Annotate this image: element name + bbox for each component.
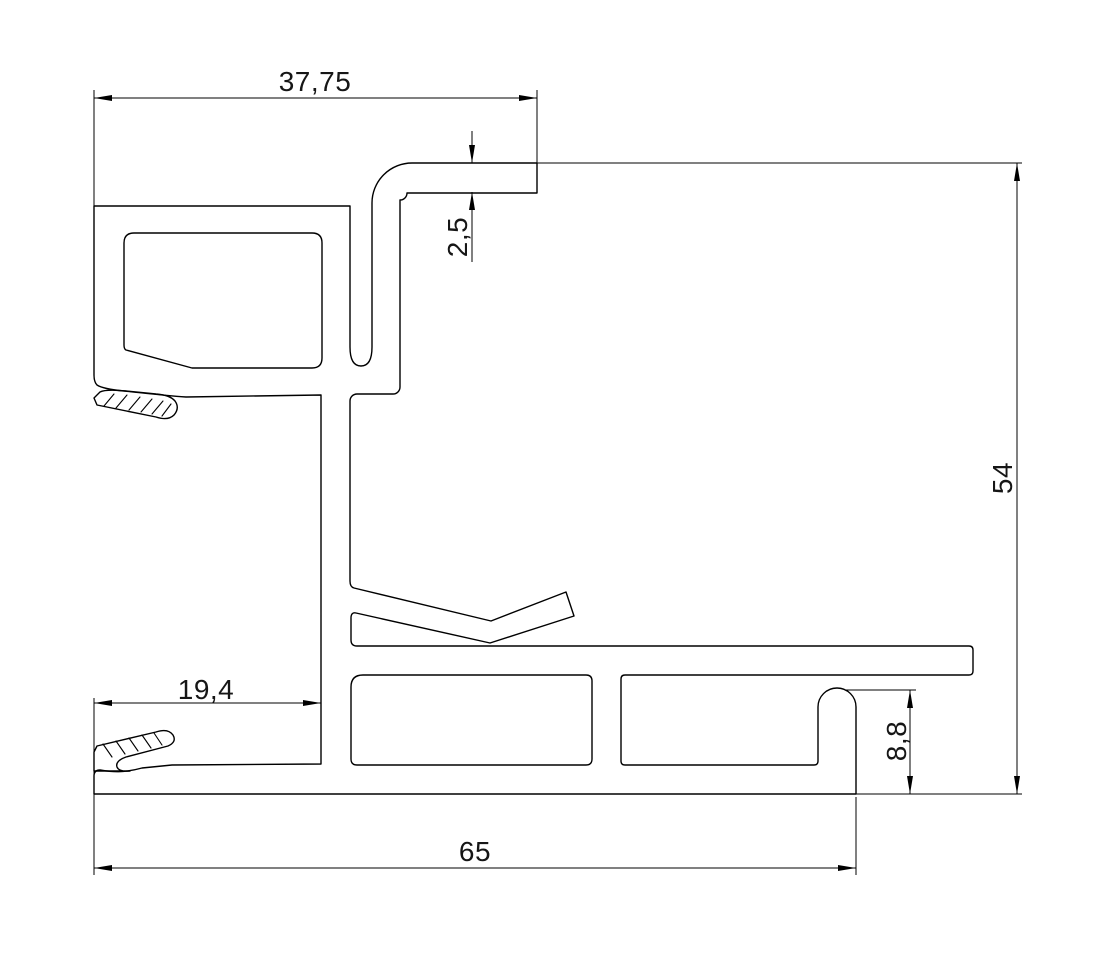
- arrow-up-icon: [469, 192, 475, 210]
- arrow-right-icon: [519, 95, 537, 101]
- upper-barb-outline: [94, 390, 177, 418]
- cad-drawing: 37,75 2,5 54 19,4 8,8 65: [0, 0, 1115, 963]
- dimension-overall-width: 65: [94, 797, 856, 875]
- dimension-overall-height: 54: [537, 163, 1022, 794]
- arrow-right-icon: [838, 865, 856, 871]
- lower-barb-hatching: [103, 733, 162, 757]
- arrow-left-icon: [94, 700, 112, 706]
- dim-label-overall-width: 65: [459, 836, 491, 867]
- arrow-down-icon: [469, 145, 475, 163]
- dim-label-top-width: 37,75: [279, 66, 352, 97]
- upper-cavity: [124, 233, 322, 368]
- dim-label-overall-height: 54: [987, 462, 1018, 494]
- dimension-lip-thickness: 2,5: [442, 131, 475, 262]
- dim-label-lip-thickness: 2,5: [442, 217, 473, 257]
- dim-label-hook-height: 8,8: [881, 721, 912, 761]
- arrow-up-icon: [907, 690, 913, 708]
- lower-left-chamber: [351, 675, 592, 765]
- dimension-top-width: 37,75: [94, 66, 537, 206]
- dim-label-left-offset: 19,4: [178, 674, 235, 705]
- arrow-right-icon: [303, 700, 321, 706]
- upper-gasket-barb: [94, 390, 177, 418]
- arrow-up-icon: [1014, 163, 1020, 181]
- arrow-down-icon: [1014, 776, 1020, 794]
- arrow-down-icon: [907, 776, 913, 794]
- drawing-canvas: 37,75 2,5 54 19,4 8,8 65: [0, 0, 1115, 963]
- dimension-left-offset: 19,4: [94, 674, 321, 875]
- arrow-left-icon: [94, 95, 112, 101]
- lower-gasket-barb: [94, 731, 174, 772]
- lower-barb-outline: [94, 731, 174, 772]
- arrow-left-icon: [94, 865, 112, 871]
